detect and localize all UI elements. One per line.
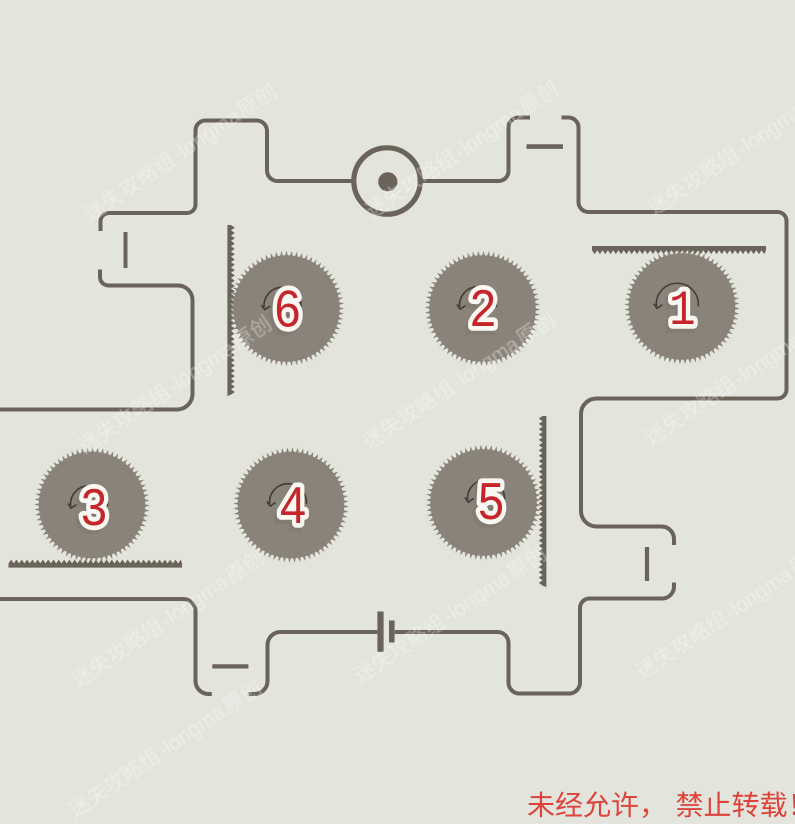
svg-text:2: 2 <box>470 280 496 338</box>
svg-text:6: 6 <box>274 280 300 338</box>
svg-text:3: 3 <box>81 479 107 537</box>
svg-text:1: 1 <box>669 283 695 339</box>
svg-text:5: 5 <box>478 473 504 531</box>
svg-text:4: 4 <box>280 477 306 535</box>
